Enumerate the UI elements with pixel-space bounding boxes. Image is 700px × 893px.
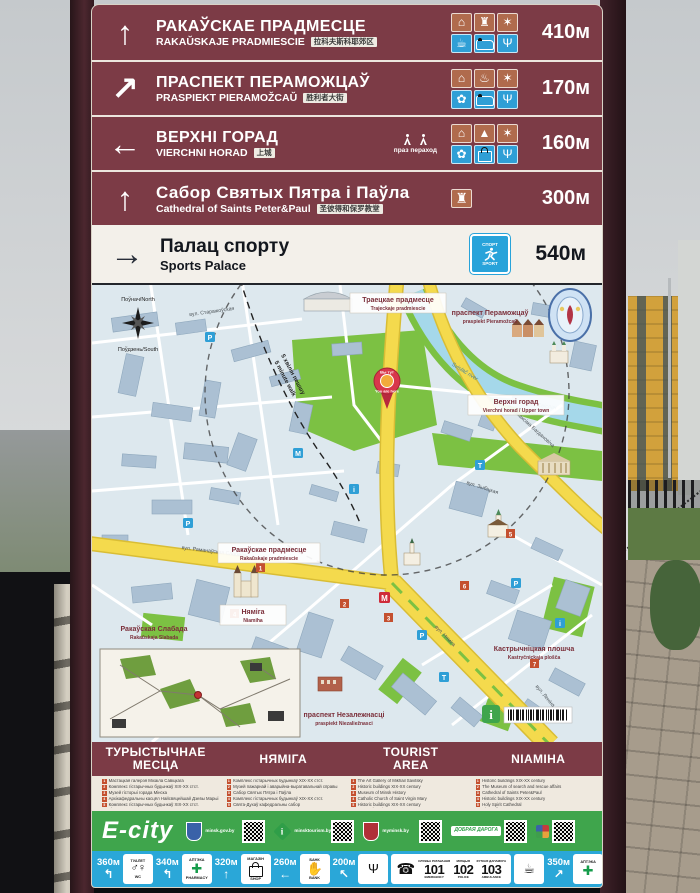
service-distance: 260м← — [274, 858, 297, 880]
phone-icon: ☎ — [396, 862, 415, 877]
area-label-niamiha: Няміга Niamiha — [220, 605, 286, 625]
shop-icon — [474, 145, 495, 164]
museum-icon: ⌂ — [451, 69, 472, 88]
svg-text:праспект Незалежнасці: праспект Незалежнасці — [304, 711, 385, 719]
cafe-icon: ☕ — [451, 34, 472, 53]
legend-item: 4Catholic Church of Saint Virgin Mary — [351, 797, 468, 802]
sign-post-left — [70, 0, 94, 893]
emergency-numbers: ☎ СЛУЖБА РАТАВАННЯ 101 EMERGENCY МІЛІЦЫЯ… — [391, 854, 511, 884]
right-arrow-icon: → — [106, 237, 148, 271]
legend-item: 4Historic buildings XIX-XX century — [476, 797, 593, 802]
entertainment-icon: ✶ — [497, 69, 518, 88]
restaurant-icon: Ψ — [497, 90, 518, 109]
bank-tile: БАНК✋BANK — [300, 854, 330, 884]
destination-title: ПРАСПЕКТ ПЕРАМОЖЦАЎ — [156, 74, 441, 92]
legend-column: 1Historic buildings XIX-XX century2The M… — [476, 779, 593, 808]
svg-text:Няміга: Няміга — [241, 608, 264, 616]
legend-header-tourist-area: TOURIST AREA — [347, 746, 475, 771]
pedestrian-icon — [420, 134, 427, 146]
destination-latin: VIERCHNI HORAD — [156, 147, 248, 159]
svg-text:Поўнач/North: Поўнач/North — [121, 296, 155, 303]
info-sign-logo: i — [274, 822, 292, 840]
svg-text:М: М — [295, 451, 301, 458]
minsk-coat-of-arms-logo — [186, 822, 202, 841]
brick-building-illustration — [318, 677, 342, 691]
legend-item: 3Сабор Святых Пятра і Паўла — [227, 791, 344, 796]
service-distance: 200м↖ — [333, 858, 356, 880]
inset-overview-map — [100, 649, 300, 737]
legend-header-niamiha-be: НЯМІГА — [220, 753, 348, 766]
belarus-emblem-logo — [536, 825, 549, 838]
hotel-icon — [474, 90, 495, 109]
svg-text:i: i — [559, 621, 561, 628]
service-icon-grid: ⌂♨✶✿Ψ — [451, 69, 518, 109]
up-right-arrow-icon: ↗ — [554, 868, 564, 880]
destination-title: ВЕРХНІ ГОРАД — [156, 129, 384, 147]
museum-icon: ⌂ — [451, 124, 472, 143]
fountain-icon: ♨ — [474, 69, 495, 88]
svg-text:Верхні горад: Верхні горад — [494, 398, 539, 406]
legend-header-niamiha-en: NIAMIHA — [475, 753, 603, 766]
direction-row-rakauskaje: ↑ РАКАЎСКАЕ ПРАДМЕСЦЕ RAKAŬSKAJE PRADMIE… — [92, 5, 602, 60]
souvenir-icon: ✿ — [451, 90, 472, 109]
direction-panel: ↑ РАКАЎСКАЕ ПРАДМЕСЦЕ RAKAŬSKAJE PRADMIE… — [92, 5, 602, 225]
pedestrian-icon — [404, 134, 411, 146]
direction-row-pieramozcau: ↗ ПРАСПЕКТ ПЕРАМОЖЦАЎ PRASPIEKT PIERAMOŽ… — [92, 60, 602, 115]
destination-chinese: 胜利者大街 — [303, 93, 347, 103]
minsk-emblem — [549, 289, 591, 341]
svg-text:Trajeckaje pradmiescie: Trajeckaje pradmiescie — [371, 306, 426, 312]
qr-code — [419, 820, 442, 843]
area-label-trajeckaje: Траецкае прадмесце Trajeckaje pradmiesci… — [350, 293, 446, 313]
legend-item: 4Архікафедральны касцёл Найсвяцейшай Дзе… — [102, 797, 219, 802]
up-left-arrow-icon: ↖ — [339, 868, 349, 880]
partner-minsk-gov: minsk.gov.by — [186, 820, 265, 843]
cafe-tile: ☕ — [514, 854, 544, 884]
svg-text:Вы тут: Вы тут — [380, 370, 394, 375]
service-distance: 320м↑ — [215, 858, 238, 880]
entertainment-icon: ✶ — [497, 13, 518, 32]
svg-text:Rakaŭskaje pradmiescie: Rakaŭskaje pradmiescie — [240, 556, 298, 562]
distance-label: 540м — [522, 242, 588, 266]
svg-text:Поўдзень/South: Поўдзень/South — [118, 346, 158, 353]
legend-item: 3Музей гісторыі горада Мінска — [102, 791, 219, 796]
destination-chinese: 拉科夫斯科耶郊区 — [311, 37, 377, 47]
destination-chinese: 上城 — [254, 148, 275, 158]
sport-icon: СПОРТ SPORT — [470, 234, 510, 274]
city-map: 5 хвілін пешшу 5 minute walk — [92, 285, 602, 742]
svg-text:P: P — [186, 521, 191, 528]
left-curve-arrow-icon: ↰ — [103, 868, 113, 880]
destination-title: Палац спорту — [160, 236, 289, 258]
pharmacy-tile: АПТЭКА✚PHARMACY — [182, 854, 212, 884]
svg-text:praspiekt Niezaliežnasci: praspiekt Niezaliežnasci — [315, 721, 373, 727]
svg-text:Кастрычніцкая плошча: Кастрычніцкая плошча — [494, 645, 575, 653]
service-distance: 350м↗ — [547, 858, 570, 880]
service-icon-grid: ⌂▲✶✿Ψ — [451, 124, 518, 164]
destination-title: РАКАЎСКАЕ ПРАДМЕСЦЕ — [156, 18, 441, 36]
restaurant-icon: Ψ — [497, 34, 518, 53]
direction-row-cathedral: ↑ Сабор Святых Пятра і Паўла Cathedral o… — [92, 170, 602, 225]
svg-text:Ракаўская Слабада: Ракаўская Слабада — [120, 625, 187, 633]
svg-text:М: М — [381, 594, 388, 603]
service-distance: 340м↰ — [156, 858, 179, 880]
destination-latin: PRASPIEKT PIERAMOŽCAŬ — [156, 92, 297, 104]
partner-myminsk: myminsk.by — [363, 820, 442, 843]
sign-post-right — [600, 0, 626, 893]
area-label-vierchni-horad: Верхні горад Vierchni horad / Upper town — [468, 395, 564, 415]
distance-label: 170м — [528, 77, 590, 100]
svg-text:Т: Т — [478, 463, 483, 470]
legend-items: 1Мастацкая галерэя Міхаіла Савіцкага2Ком… — [92, 776, 602, 811]
museum-icon: ⌂ — [451, 13, 472, 32]
restaurant-icon: Ψ — [497, 145, 518, 164]
cafe-icon: ☕ — [523, 862, 535, 876]
services-strip: 360м↰ТУАЛЕТ♂♀WC340м↰АПТЭКА✚PHARMACY320м↑… — [92, 851, 602, 887]
distance-label: 410м — [528, 21, 590, 44]
castle-icon: ♜ — [474, 13, 495, 32]
direction-row-vierchni-horad: ← ВЕРХНІ ГОРАД VIERCHNI HORAD 上城 праз пе… — [92, 115, 602, 170]
qr-code — [242, 820, 265, 843]
up-arrow-icon: ↑ — [104, 182, 146, 215]
legend-item: 4Комплекс гістарычных будынкаў XIX-XX ст… — [227, 797, 344, 802]
legend-column: 1Мастацкая галерэя Міхаіла Савіцкага2Ком… — [102, 779, 219, 808]
services-right: ☕350м↗АПТЭКА✚360м↗Ψ400м↗ГАТЭЛЬ450м↗ — [514, 854, 602, 884]
distance-label: 160м — [528, 132, 590, 155]
restaurant-tile: Ψ — [358, 854, 388, 884]
shop-icon — [249, 866, 263, 877]
background-building — [678, 240, 700, 495]
hotel-icon — [474, 34, 495, 53]
city-emblem-logo — [363, 822, 379, 841]
svg-text:i: i — [489, 707, 493, 722]
svg-text:праспект Пераможцаў: праспект Пераможцаў — [452, 309, 529, 317]
map-svg: 5 хвілін пешшу 5 minute walk — [92, 285, 602, 742]
direction-row-sports-palace: → Палац спорту Sports Palace СПОРТ SPORT… — [92, 225, 602, 285]
destination-latin: RAKAŬSKAJE PRADMIESCIE — [156, 36, 305, 48]
svg-text:praspiekt Pieramožcaŭ: praspiekt Pieramožcaŭ — [463, 319, 517, 325]
area-label-rakauskaje: Ракаўскае прадмесце Rakaŭskaje pradmiesc… — [218, 543, 320, 563]
ecity-band: E-city minsk.gov.by i minsktourism.by my… — [92, 811, 602, 851]
bush — [650, 560, 700, 650]
restaurant-icon: Ψ — [368, 862, 379, 876]
legend-item: 3Cathedral of Saints Peter&Paul — [476, 791, 593, 796]
destination-latin: Cathedral of Saints Peter&Paul — [156, 203, 311, 215]
toilet-icon: ♂♀ — [131, 863, 146, 875]
legend-column: 1The Art Gallery of Mikhail Savitsky2His… — [351, 779, 468, 808]
tourist-wayfinding-sign: ↑ РАКАЎСКАЕ ПРАДМЕСЦЕ RAKAŬSKAJE PRADMIE… — [92, 5, 602, 887]
up-arrow-icon: ↑ — [104, 16, 146, 49]
legend-header-turystychnae: ТУРЫСТЫЧНАЕ МЕСЦА — [92, 746, 220, 771]
flag-mast — [668, 278, 671, 478]
map-info-block: i — [482, 705, 572, 723]
left-arrow-icon: ← — [279, 868, 291, 880]
partner-minsktourism: i minsktourism.by — [274, 820, 354, 843]
up-right-arrow-icon: ↗ — [104, 72, 146, 105]
street-scene: ↑ РАКАЎСКАЕ ПРАДМЕСЦЕ RAKAŬSKAJE PRADMIE… — [0, 0, 700, 893]
destination-chinese: 圣彼得和保罗教堂 — [317, 204, 383, 214]
svg-text:Niamiha: Niamiha — [243, 618, 263, 624]
pharmacy-tile: АПТЭКА✚ — [573, 854, 602, 884]
qr-code — [504, 820, 527, 843]
crossing-label: праз пераход — [394, 147, 437, 154]
svg-text:P: P — [208, 335, 213, 342]
services-left: 360м↰ТУАЛЕТ♂♀WC340м↰АПТЭКА✚PHARMACY320м↑… — [97, 854, 388, 884]
partner-belarus — [536, 820, 575, 843]
service-distance: 360м↰ — [97, 858, 120, 880]
stone-wall — [0, 430, 72, 580]
partner-good-road: ДОБРАЯ ДАРОГА — [451, 820, 527, 843]
pedestrian-crossing-note: праз пераход — [394, 134, 437, 154]
left-arrow-icon: ← — [104, 127, 146, 160]
svg-text:Т: Т — [442, 675, 447, 682]
svg-text:Rakaŭskaja Slabada: Rakaŭskaja Slabada — [130, 635, 178, 641]
pharmacy-icon: ✚ — [191, 862, 202, 876]
distance-label: 300м — [528, 187, 590, 210]
good-road-logo: ДОБРАЯ ДАРОГА — [451, 826, 501, 836]
pharmacy-icon: ✚ — [583, 864, 594, 878]
qr-code — [552, 820, 575, 843]
monument-icon: ▲ — [474, 124, 495, 143]
destination-latin: Sports Palace — [160, 258, 289, 273]
souvenir-icon: ✿ — [451, 145, 472, 164]
left-curve-arrow-icon: ↰ — [162, 868, 172, 880]
svg-text:i: i — [353, 487, 355, 494]
svg-text:Ракаўскае прадмесце: Ракаўскае прадмесце — [232, 546, 307, 554]
svg-text:Kastryčnickaja plošča: Kastryčnickaja plošča — [508, 655, 561, 661]
svg-text:Vierchni horad / Upper town: Vierchni horad / Upper town — [483, 408, 550, 414]
ecity-brand: E-city — [102, 817, 173, 845]
bank-icon: ✋ — [306, 862, 322, 876]
svg-text:You are here: You are here — [375, 389, 400, 394]
church-icon-grid: ♜ — [451, 189, 518, 208]
legend-column: 1Комплекс гістарычных будынкаў XIX-XX ст… — [227, 779, 344, 808]
runner-icon — [482, 247, 498, 261]
grass-strip — [628, 508, 700, 566]
svg-text:Траецкае прадмесце: Траецкае прадмесце — [362, 297, 434, 304]
entertainment-icon: ✶ — [497, 124, 518, 143]
svg-text:P: P — [420, 633, 425, 640]
legend-header-band: ТУРЫСТЫЧНАЕ МЕСЦА НЯМІГА TOURIST AREA NI… — [92, 742, 602, 776]
destination-title: Сабор Святых Пятра і Паўла — [156, 183, 441, 203]
shop-tile: МАГАЗІНSHOP — [241, 854, 271, 884]
legend-item: 3Museum of Minsk History — [351, 791, 468, 796]
service-icon-grid: ⌂♜✶☕Ψ — [451, 13, 518, 53]
toilet-tile: ТУАЛЕТ♂♀WC — [123, 854, 153, 884]
svg-text:P: P — [514, 581, 519, 588]
church-icon: ♜ — [451, 189, 472, 208]
qr-code — [331, 820, 354, 843]
up-arrow-icon: ↑ — [223, 868, 229, 880]
